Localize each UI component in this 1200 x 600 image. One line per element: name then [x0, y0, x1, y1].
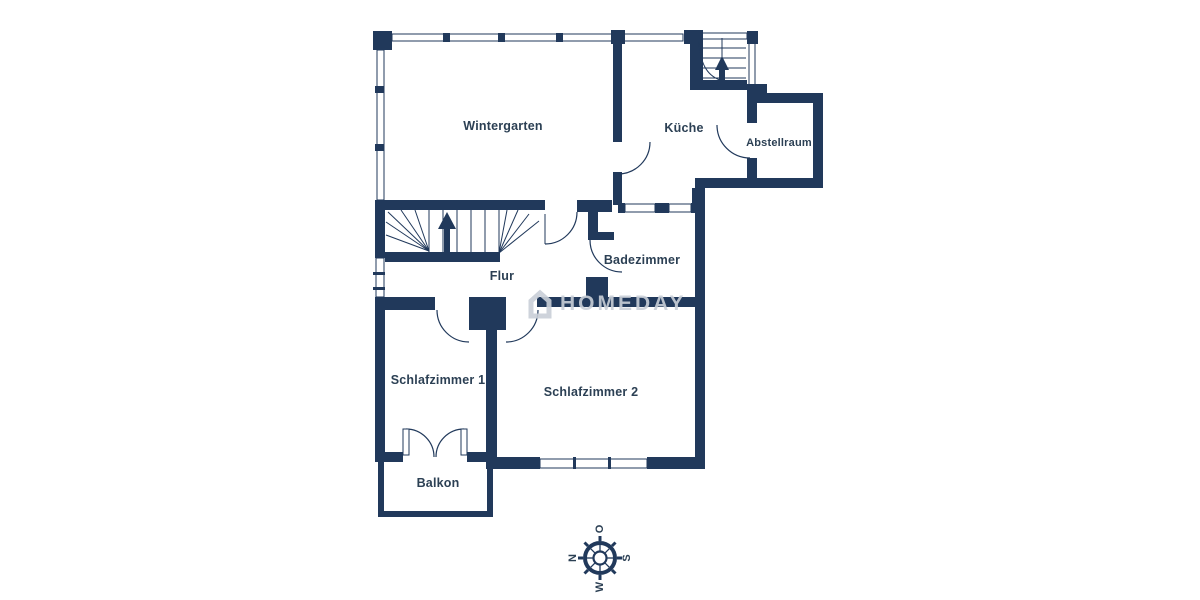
room-label-balkon: Balkon — [417, 476, 460, 490]
stairs-upper — [698, 38, 746, 84]
stairs-up-arrow — [438, 212, 456, 252]
door-abstellraum — [717, 125, 750, 158]
door-wintergarten-flur — [545, 212, 577, 244]
room-label-schlafzimmer1: Schlafzimmer 1 — [391, 373, 486, 387]
compass-letter-east: O — [594, 524, 606, 533]
door-wintergarten-kueche — [618, 142, 650, 174]
room-label-wintergarten: Wintergarten — [463, 119, 542, 133]
room-label-badezimmer: Badezimmer — [604, 253, 680, 267]
room-label-flur: Flur — [490, 269, 514, 283]
door-schlafzimmer1 — [437, 310, 469, 342]
floor-plan-page: N O S W Wintergarten Küche Abstellraum B… — [0, 0, 1200, 600]
compass-letter-west: W — [594, 581, 606, 592]
compass-letter-north: N — [567, 554, 579, 562]
stairs-up-arrow — [715, 56, 729, 84]
compass-letter-south: S — [621, 554, 633, 561]
floor-plan-canvas: N O S W — [0, 0, 1200, 600]
room-label-kueche: Küche — [664, 121, 703, 135]
room-label-abstellraum: Abstellraum — [746, 137, 812, 149]
balcony-door-right-leaf — [461, 429, 467, 455]
balcony-door-left-leaf — [403, 429, 409, 455]
room-label-schlafzimmer2: Schlafzimmer 2 — [544, 385, 639, 399]
door-schlafzimmer2 — [506, 310, 538, 342]
balcony-door-left-arc — [406, 429, 434, 457]
compass-rose: N O S W — [567, 524, 633, 592]
balcony-door-right-arc — [436, 429, 464, 457]
walls-layer — [373, 30, 823, 517]
stairs-main — [385, 210, 539, 262]
